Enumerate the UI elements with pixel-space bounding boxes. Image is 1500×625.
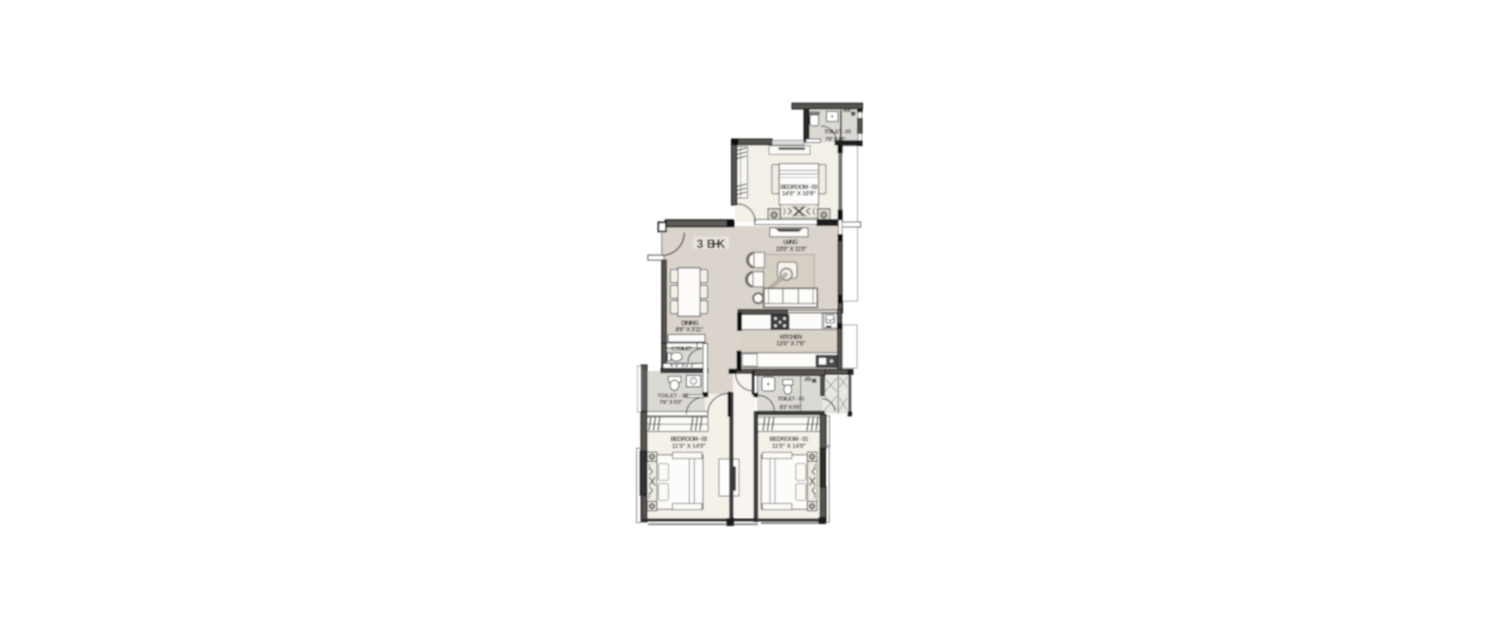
svg-text:11'3" X 14'0": 11'3" X 14'0"	[672, 444, 706, 450]
svg-text:8'6" X 3'11": 8'6" X 3'11"	[676, 328, 704, 334]
svg-text:KITCHEN: KITCHEN	[780, 335, 803, 341]
svg-text:14'0" X 10'9": 14'0" X 10'9"	[782, 191, 816, 197]
svg-text:23'0" X 11'0": 23'0" X 11'0"	[776, 247, 807, 253]
svg-text:13'0" X 7'6": 13'0" X 7'6"	[776, 342, 806, 348]
svg-text:3: 3	[697, 237, 704, 251]
svg-text:BHK: BHK	[707, 237, 726, 251]
svg-text:TOILET - 02: TOILET - 02	[658, 393, 689, 399]
svg-text:TOILET - 01: TOILET - 01	[778, 397, 805, 403]
svg-text:C TOILET: C TOILET	[671, 346, 692, 352]
svg-text:BEDROOM - 03: BEDROOM - 03	[781, 185, 819, 191]
svg-text:LIVING: LIVING	[783, 240, 798, 246]
svg-text:TOILET - 03: TOILET - 03	[824, 129, 851, 135]
svg-text:7'0" X 4'6": 7'0" X 4'6"	[825, 137, 846, 143]
svg-text:BEDROOM - 01: BEDROOM - 01	[770, 437, 810, 443]
svg-text:BEDROOM - 02: BEDROOM - 02	[671, 437, 709, 443]
svg-text:11'0" X 14'0": 11'0" X 14'0"	[772, 444, 806, 450]
svg-text:DINING: DINING	[681, 321, 699, 327]
svg-text:4'5"X3'3": 4'5"X3'3"	[670, 363, 696, 369]
svg-text:7'6" X 5'0": 7'6" X 5'0"	[659, 400, 683, 406]
svg-text:8'3" X 5'0": 8'3" X 5'0"	[780, 405, 802, 411]
